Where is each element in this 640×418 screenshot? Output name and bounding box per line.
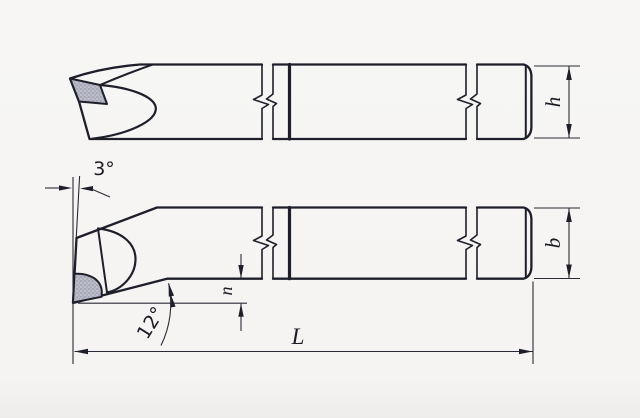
break-line (471, 208, 481, 279)
dimension-front-angle (45, 176, 110, 364)
seat-arc (98, 229, 136, 293)
label-clearance-angle: 12° (133, 303, 170, 343)
arrowhead-down (238, 265, 243, 278)
arrowhead-right (59, 185, 72, 190)
arrowhead-up (238, 304, 243, 317)
carbide-insert-side (70, 79, 107, 105)
arrowhead-left (80, 186, 93, 191)
break-line (458, 208, 473, 279)
break-line (254, 65, 269, 140)
face-extension-line (76, 176, 79, 237)
arrowhead-arc-top (166, 282, 174, 296)
dimension-n (238, 254, 243, 331)
arrowhead-up (566, 209, 572, 223)
turning-tool-technical-drawing: h b 3° (0, 0, 640, 418)
break-line (254, 208, 269, 279)
shank-end-outline (477, 208, 531, 279)
break-line (267, 65, 277, 140)
side-view (70, 65, 531, 140)
arrowhead-up (566, 67, 572, 81)
break-line (458, 65, 473, 140)
arrowhead-right (519, 349, 533, 355)
tool-drawing-canvas: h b 3° (0, 0, 640, 418)
carbide-insert-plan (73, 274, 102, 303)
label-front-angle: 3° (93, 158, 115, 180)
plan-view (73, 208, 531, 304)
arrowhead-down (566, 265, 572, 279)
label-n: n (216, 287, 236, 296)
arrowhead-left (75, 349, 89, 355)
shank-end-outline (477, 65, 531, 140)
label-h: h (541, 97, 565, 108)
label-b: b (541, 238, 565, 249)
label-L: L (291, 324, 305, 349)
arrowhead-down (566, 124, 572, 138)
break-line (267, 208, 277, 279)
break-line (471, 65, 481, 140)
